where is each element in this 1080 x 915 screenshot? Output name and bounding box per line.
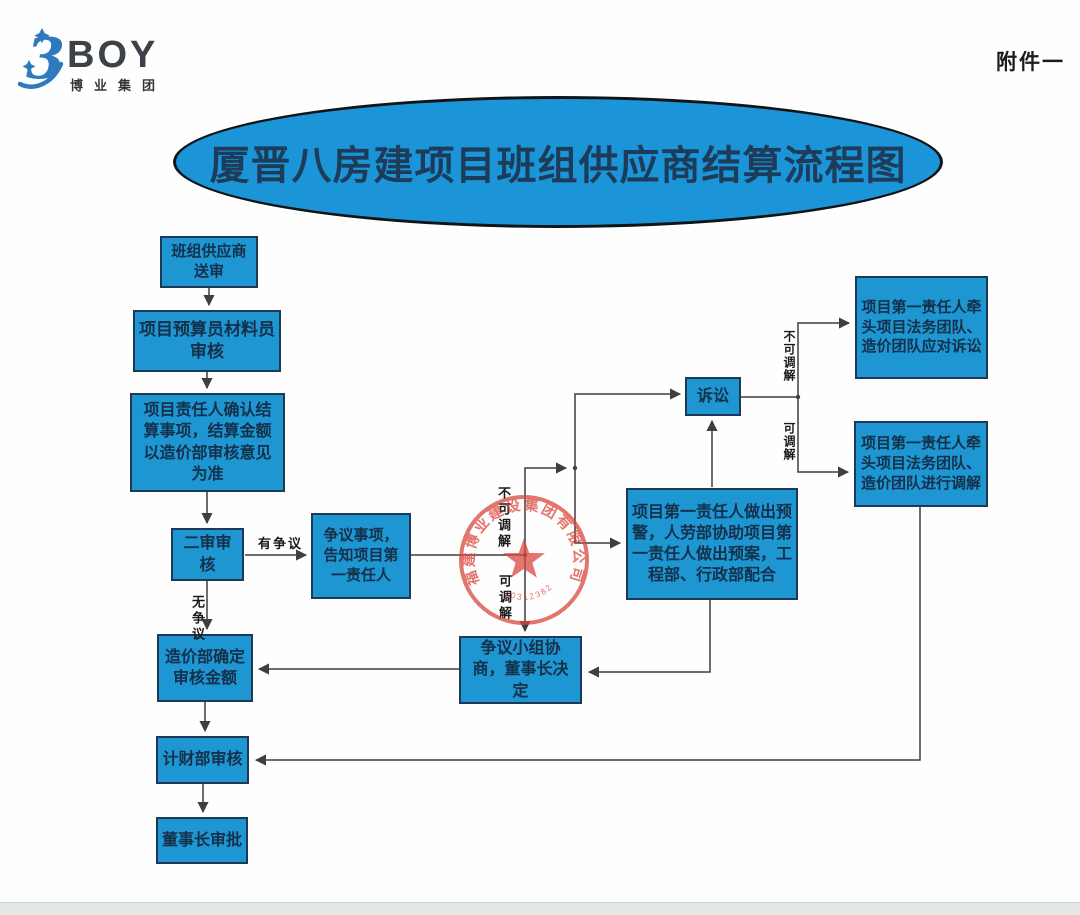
node-finance-review: 计财部审核 <box>156 736 249 784</box>
logo-text: BOY <box>67 34 158 76</box>
edge-label-disputed: 有争议 <box>258 533 303 552</box>
node-estimator-review: 项目预算员材料员审核 <box>133 310 281 372</box>
edge-label-not-mediable-right: 不可调解 <box>781 330 798 382</box>
seal-number-text: 10312382 <box>503 581 555 602</box>
node-warning-plan: 项目第一责任人做出预警，人劳部协助项目第一责任人做出预案，工程部、行政部配合 <box>626 488 798 600</box>
svg-text:10312382: 10312382 <box>503 581 555 602</box>
edge-label-mediable-right: 可调解 <box>781 422 798 461</box>
node-cost-dept-confirm: 造价部确定审核金额 <box>157 634 253 702</box>
edge-label-undisputed: 无争议 <box>188 595 207 643</box>
node-second-review: 二审审核 <box>171 528 244 581</box>
node-dispute-group: 争议小组协商，董事长决定 <box>459 636 582 704</box>
node-owner-confirm: 项目责任人确认结算事项，结算金额以造价部审核意见为准 <box>130 393 285 492</box>
company-seal: 福建博业建设集团有限公司 10312382 <box>456 492 592 628</box>
node-chairman-approve: 董事长审批 <box>156 817 248 864</box>
attachment-label: 附件一 <box>996 46 1065 76</box>
node-submit: 班组供应商送审 <box>160 236 258 288</box>
company-logo: 3 BOY 博业集团 <box>12 20 187 103</box>
logo-graphic: 3 BOY 博业集团 <box>12 20 187 98</box>
flowchart-page: 3 BOY 博业集团 附件一 厦晋八房建项目班组供应商结算流程图 <box>0 0 1080 915</box>
seal-star-icon <box>503 538 545 578</box>
node-dispute-notify: 争议事项，告知项目第一责任人 <box>311 513 411 599</box>
node-litigation: 诉讼 <box>685 377 741 416</box>
scan-edge-strip <box>0 902 1080 915</box>
node-legal-litigation: 项目第一责任人牵头项目法务团队、造价团队应对诉讼 <box>855 276 988 379</box>
node-legal-mediation: 项目第一责任人牵头项目法务团队、造价团队进行调解 <box>854 421 988 507</box>
logo-subtext: 博业集团 <box>70 78 166 93</box>
